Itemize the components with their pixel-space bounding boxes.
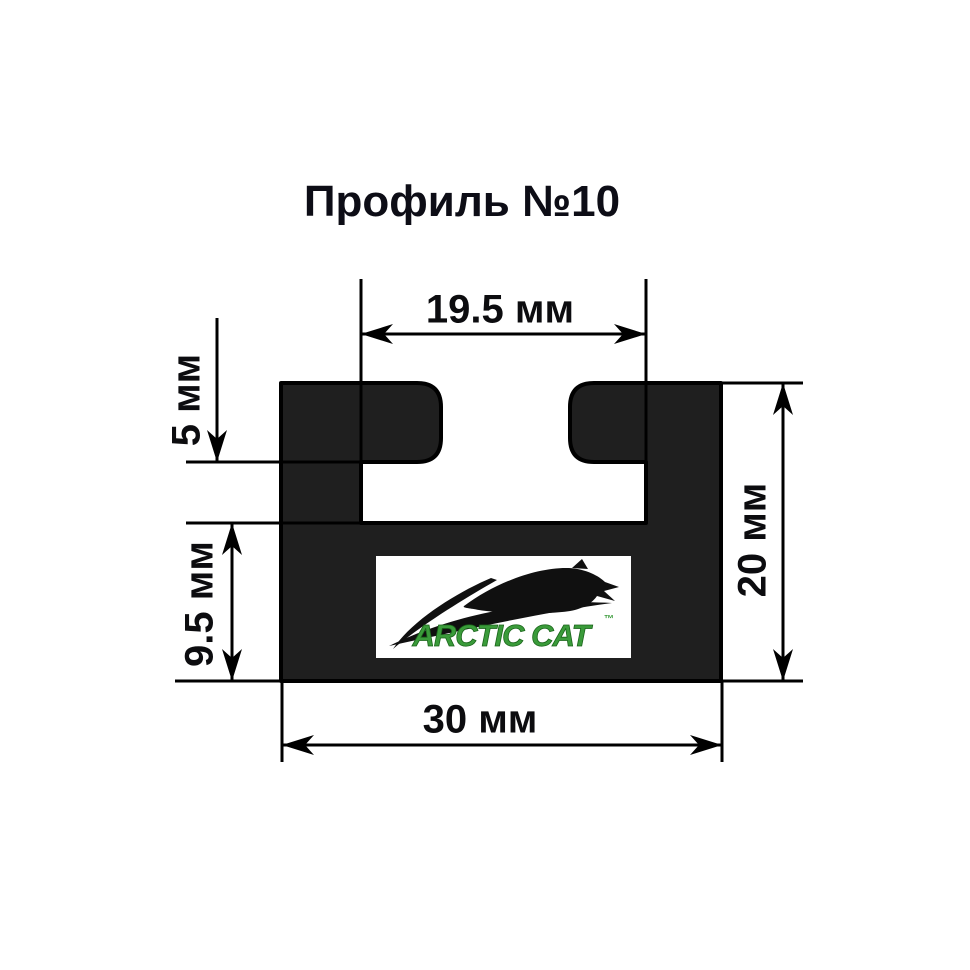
dim-label-total-height: 20 мм [731,483,776,598]
dim-label-flange-height: 5 мм [165,354,210,447]
dim-label-base-height: 9.5 мм [178,541,223,667]
arctic-cat-logo: ARCTIC CAT ™ [376,556,631,658]
dim-label-groove-width: 19.5 мм [426,288,574,333]
logo-trademark: ™ [604,614,614,625]
dim-label-total-width: 30 мм [423,698,538,743]
profile-drawing [0,0,970,970]
profile-dimension-diagram: Профиль №10 1 [0,0,970,970]
arctic-cat-logo-graphic: ARCTIC CAT ™ [376,556,631,658]
logo-brand-text: ARCTIC CAT [411,618,593,653]
